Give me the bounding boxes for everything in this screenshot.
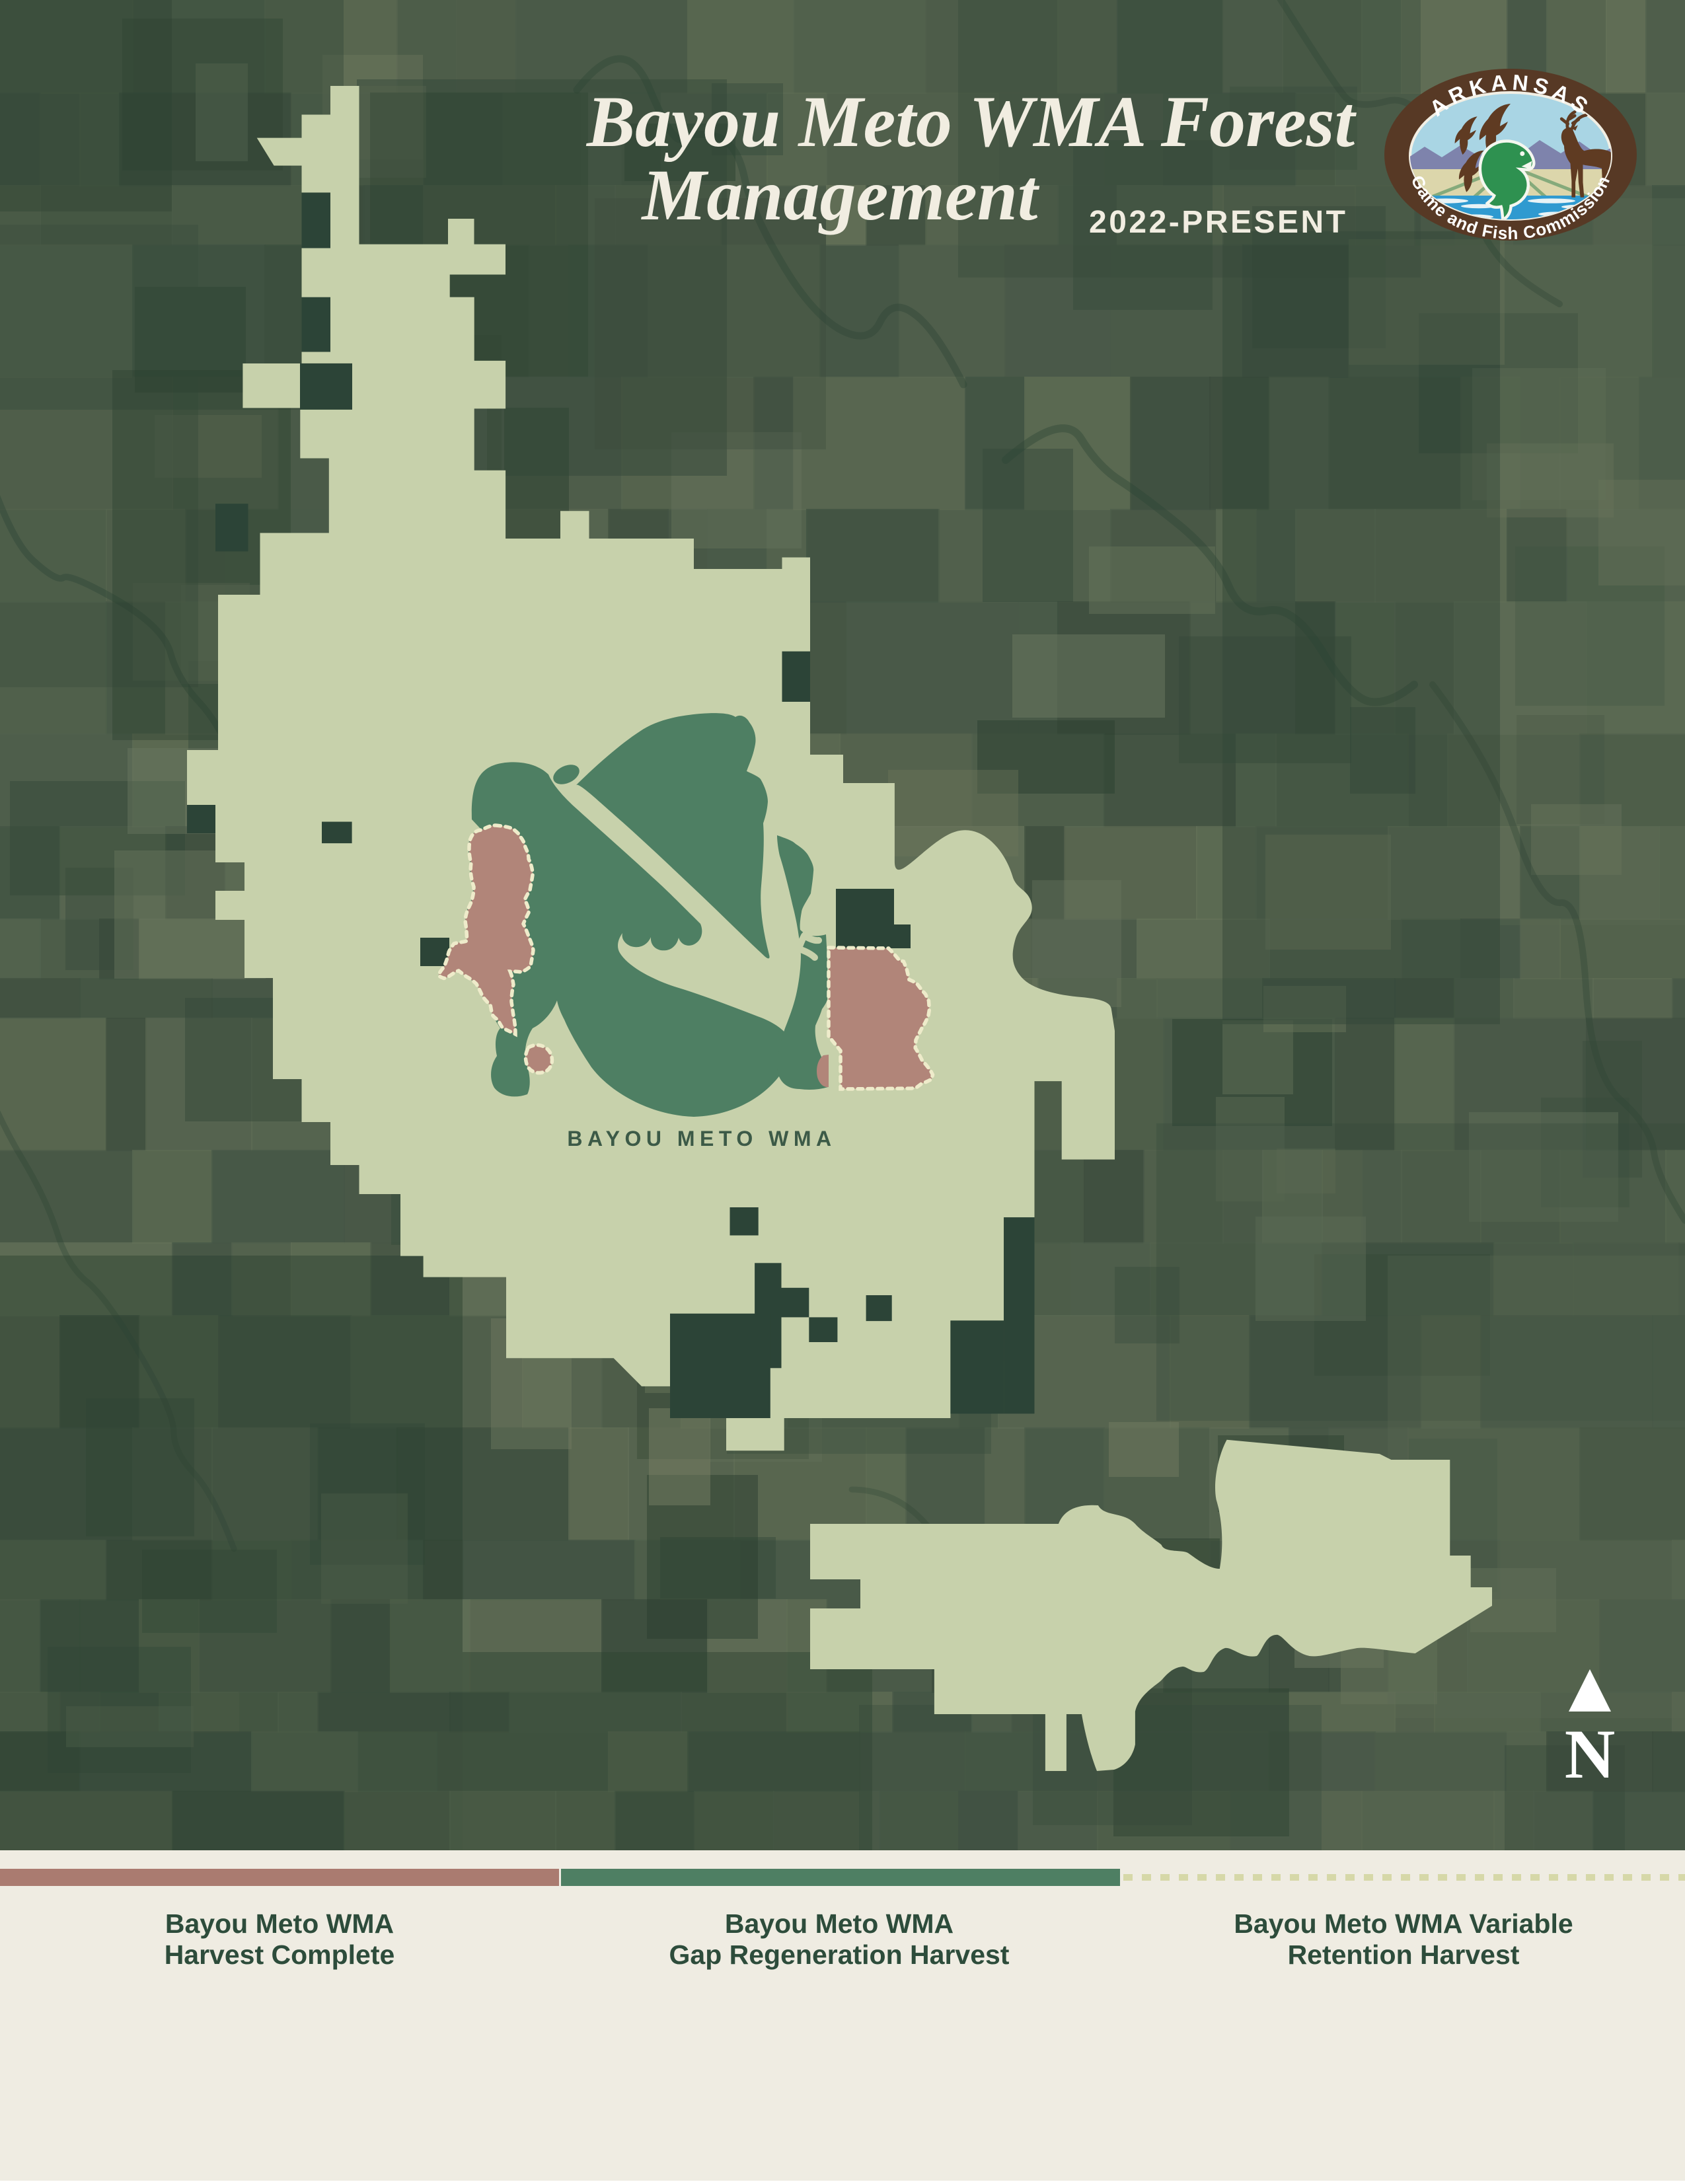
svg-text:Bayou Meto WMA: Bayou Meto WMA (725, 1908, 954, 1939)
svg-text:Bayou Meto WMA Variable: Bayou Meto WMA Variable (1234, 1908, 1573, 1939)
svg-text:Harvest Complete: Harvest Complete (165, 1939, 395, 1970)
svg-text:Bayou Meto WMA: Bayou Meto WMA (165, 1908, 394, 1939)
svg-text:Bayou Meto WMA Forest: Bayou Meto WMA Forest (585, 81, 1357, 162)
svg-text:Gap Regeneration Harvest: Gap Regeneration Harvest (669, 1939, 1010, 1970)
svg-text:2022-PRESENT: 2022-PRESENT (1089, 205, 1347, 240)
svg-text:Retention Harvest: Retention Harvest (1288, 1939, 1520, 1970)
svg-text:BAYOU METO WMA: BAYOU METO WMA (567, 1127, 836, 1150)
svg-text:N: N (1565, 1715, 1616, 1793)
svg-text:Management: Management (641, 155, 1040, 235)
